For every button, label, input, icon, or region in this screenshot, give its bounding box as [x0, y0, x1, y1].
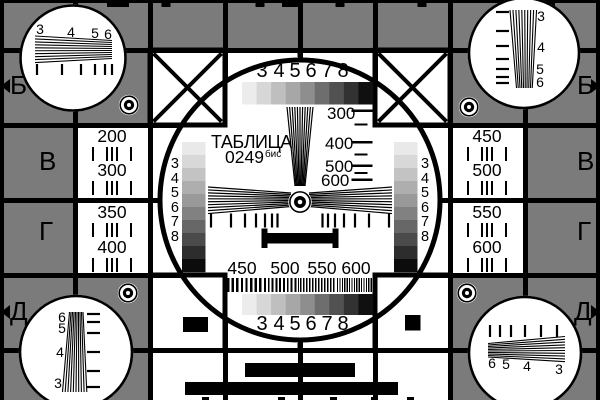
side-panel-number: 450 — [472, 128, 501, 146]
bottom-grayscale-label: 5 — [289, 314, 300, 334]
top-grayscale-label: 5 — [289, 61, 300, 81]
card-code-suffix: бис — [265, 149, 281, 160]
right-staircase-label: 7 — [421, 215, 429, 230]
side-panel-number: 550 — [472, 204, 501, 222]
side-panel-tick — [486, 147, 488, 161]
bottom-grayscale-label: 6 — [305, 314, 316, 334]
side-panel-number: 600 — [472, 239, 501, 257]
side-panel-tick — [467, 223, 469, 237]
left-staircase-label: 7 — [171, 215, 179, 230]
top-left-wedge-label: 5 — [91, 26, 99, 40]
bottom-grayscale-label: 8 — [337, 314, 348, 334]
side-panel-tick — [491, 147, 493, 161]
frequency-label: 600 — [341, 260, 370, 278]
right-staircase-label: 3 — [421, 157, 429, 172]
bottom-grayscale-label: 3 — [256, 314, 267, 334]
left-staircase-label: 8 — [171, 230, 179, 245]
side-panel-tick — [491, 223, 493, 237]
bottom-right-wedge-label: 6 — [488, 356, 496, 370]
top-grayscale-label: 7 — [321, 61, 332, 81]
side-panel-tick — [467, 181, 469, 195]
labels-layer: ТАБЛИЦА 0249бис 345678345678345678345678… — [0, 0, 600, 400]
bottom-right-wedge-label: 3 — [555, 362, 563, 376]
row-marker-left: Г — [39, 218, 53, 244]
top-left-wedge-label: 4 — [67, 25, 75, 39]
left-staircase-label: 3 — [171, 157, 179, 172]
top-grayscale-label: 8 — [337, 61, 348, 81]
bottom-left-wedge-label: 4 — [56, 345, 64, 359]
bottom-grayscale-label: 7 — [321, 314, 332, 334]
side-panel-tick — [505, 181, 507, 195]
side-panel-tick — [92, 258, 94, 272]
top-right-wedge-label: 6 — [536, 75, 544, 89]
top-grayscale-label: 4 — [273, 61, 284, 81]
card-code-number: 0249 — [225, 147, 264, 167]
side-panel-number: 300 — [97, 162, 126, 180]
row-marker-left: Б — [10, 72, 27, 98]
side-panel-number: 350 — [97, 204, 126, 222]
side-panel-number: 200 — [97, 128, 126, 146]
side-panel-tick — [486, 258, 488, 272]
side-panel-tick — [116, 147, 118, 161]
side-panel-tick — [106, 147, 108, 161]
row-marker-arrow-right-icon — [591, 305, 600, 319]
side-panel-tick — [481, 147, 483, 161]
side-panel-tick — [92, 181, 94, 195]
left-staircase-label: 5 — [171, 186, 179, 201]
vertical-wedge-label: 400 — [325, 135, 353, 152]
side-panel-tick — [505, 258, 507, 272]
side-panel-tick — [467, 258, 469, 272]
row-marker-arrow-right-icon — [591, 79, 600, 93]
side-panel-number: 400 — [97, 239, 126, 257]
side-panel-tick — [491, 181, 493, 195]
side-panel-number: 500 — [472, 162, 501, 180]
right-staircase-label: 5 — [421, 186, 429, 201]
side-panel-tick — [111, 181, 113, 195]
row-marker-right: Д — [574, 298, 592, 324]
side-panel-tick — [481, 258, 483, 272]
top-left-wedge-label: 6 — [104, 27, 112, 41]
side-panel-tick — [481, 223, 483, 237]
vertical-wedge-label: 300 — [327, 105, 355, 122]
row-marker-arrow-left-icon — [1, 79, 10, 93]
bottom-grayscale-label: 4 — [273, 314, 284, 334]
side-panel-tick — [505, 223, 507, 237]
side-panel-tick — [130, 223, 132, 237]
bottom-right-wedge-label: 5 — [502, 357, 510, 371]
tv-test-card: ТАБЛИЦА 0249бис 345678345678345678345678… — [0, 0, 600, 400]
top-grayscale-label: 3 — [256, 61, 267, 81]
side-panel-tick — [486, 223, 488, 237]
side-panel-tick — [467, 147, 469, 161]
bottom-right-wedge-label: 4 — [523, 359, 531, 373]
top-grayscale-label: 6 — [305, 61, 316, 81]
bottom-left-wedge-label: 5 — [58, 321, 66, 335]
side-panel-tick — [505, 147, 507, 161]
frequency-label: 500 — [270, 260, 299, 278]
bottom-left-wedge-label: 3 — [54, 376, 62, 390]
side-panel-tick — [111, 258, 113, 272]
top-left-wedge-label: 3 — [36, 22, 44, 36]
side-panel-tick — [106, 181, 108, 195]
side-panel-tick — [130, 258, 132, 272]
side-panel-tick — [116, 223, 118, 237]
side-panel-tick — [491, 258, 493, 272]
row-marker-right: В — [577, 148, 594, 174]
top-right-wedge-label: 3 — [537, 9, 545, 23]
side-panel-tick — [481, 181, 483, 195]
side-panel-tick — [111, 147, 113, 161]
side-panel-tick — [116, 181, 118, 195]
side-panel-tick — [116, 258, 118, 272]
frequency-label: 550 — [307, 260, 336, 278]
side-panel-tick — [130, 147, 132, 161]
side-panel-tick — [111, 223, 113, 237]
side-panel-tick — [130, 181, 132, 195]
row-marker-arrow-left-icon — [1, 305, 10, 319]
card-code: 0249бис — [225, 149, 281, 167]
side-panel-tick — [92, 147, 94, 161]
row-marker-left: Д — [10, 298, 28, 324]
side-panel-tick — [106, 258, 108, 272]
right-staircase-label: 8 — [421, 230, 429, 245]
top-right-wedge-label: 4 — [537, 40, 545, 54]
row-marker-right: Г — [577, 218, 591, 244]
frequency-label: 450 — [227, 260, 256, 278]
side-panel-tick — [486, 181, 488, 195]
side-panel-tick — [106, 223, 108, 237]
side-panel-tick — [92, 223, 94, 237]
row-marker-left: В — [39, 148, 56, 174]
vertical-wedge-label: 600 — [321, 172, 349, 189]
